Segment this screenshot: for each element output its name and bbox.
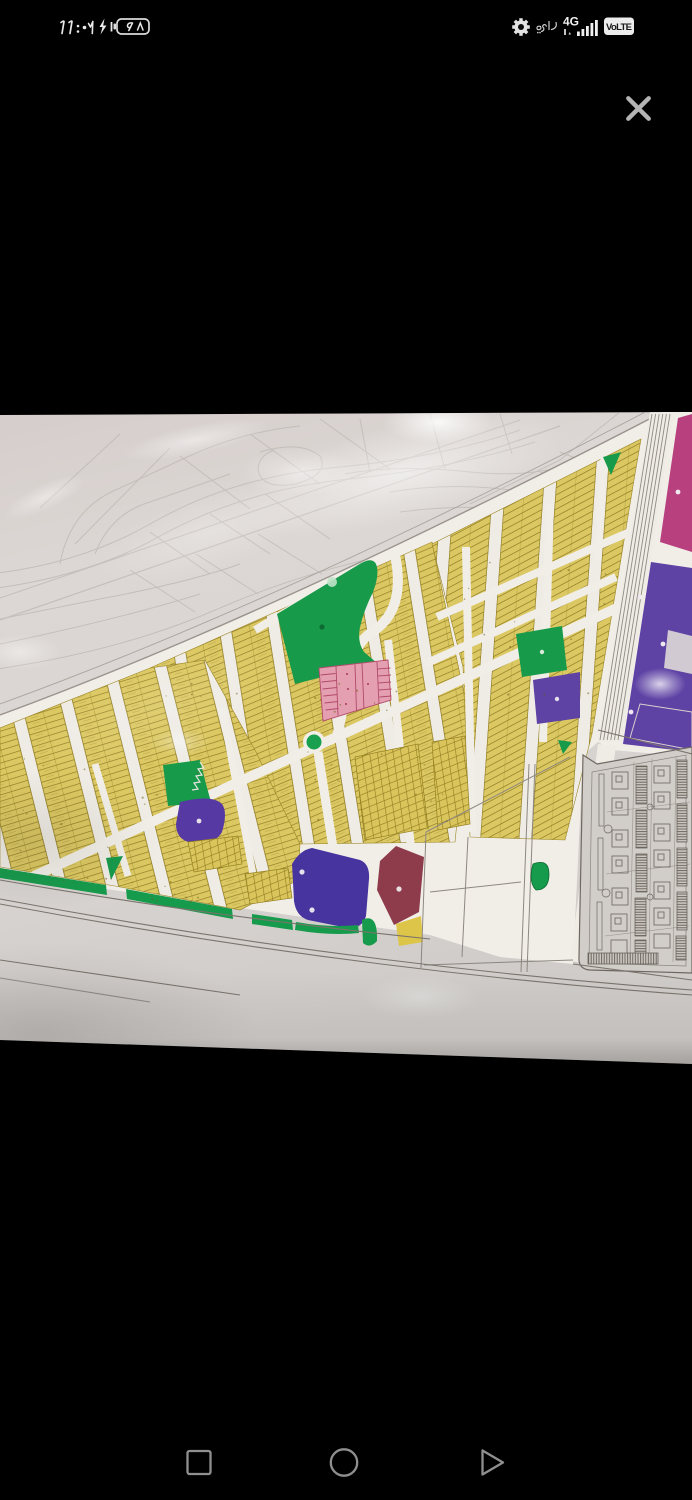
svg-text:VoLTE: VoLTE [606, 22, 632, 33]
svg-text:4G: 4G [563, 15, 579, 29]
